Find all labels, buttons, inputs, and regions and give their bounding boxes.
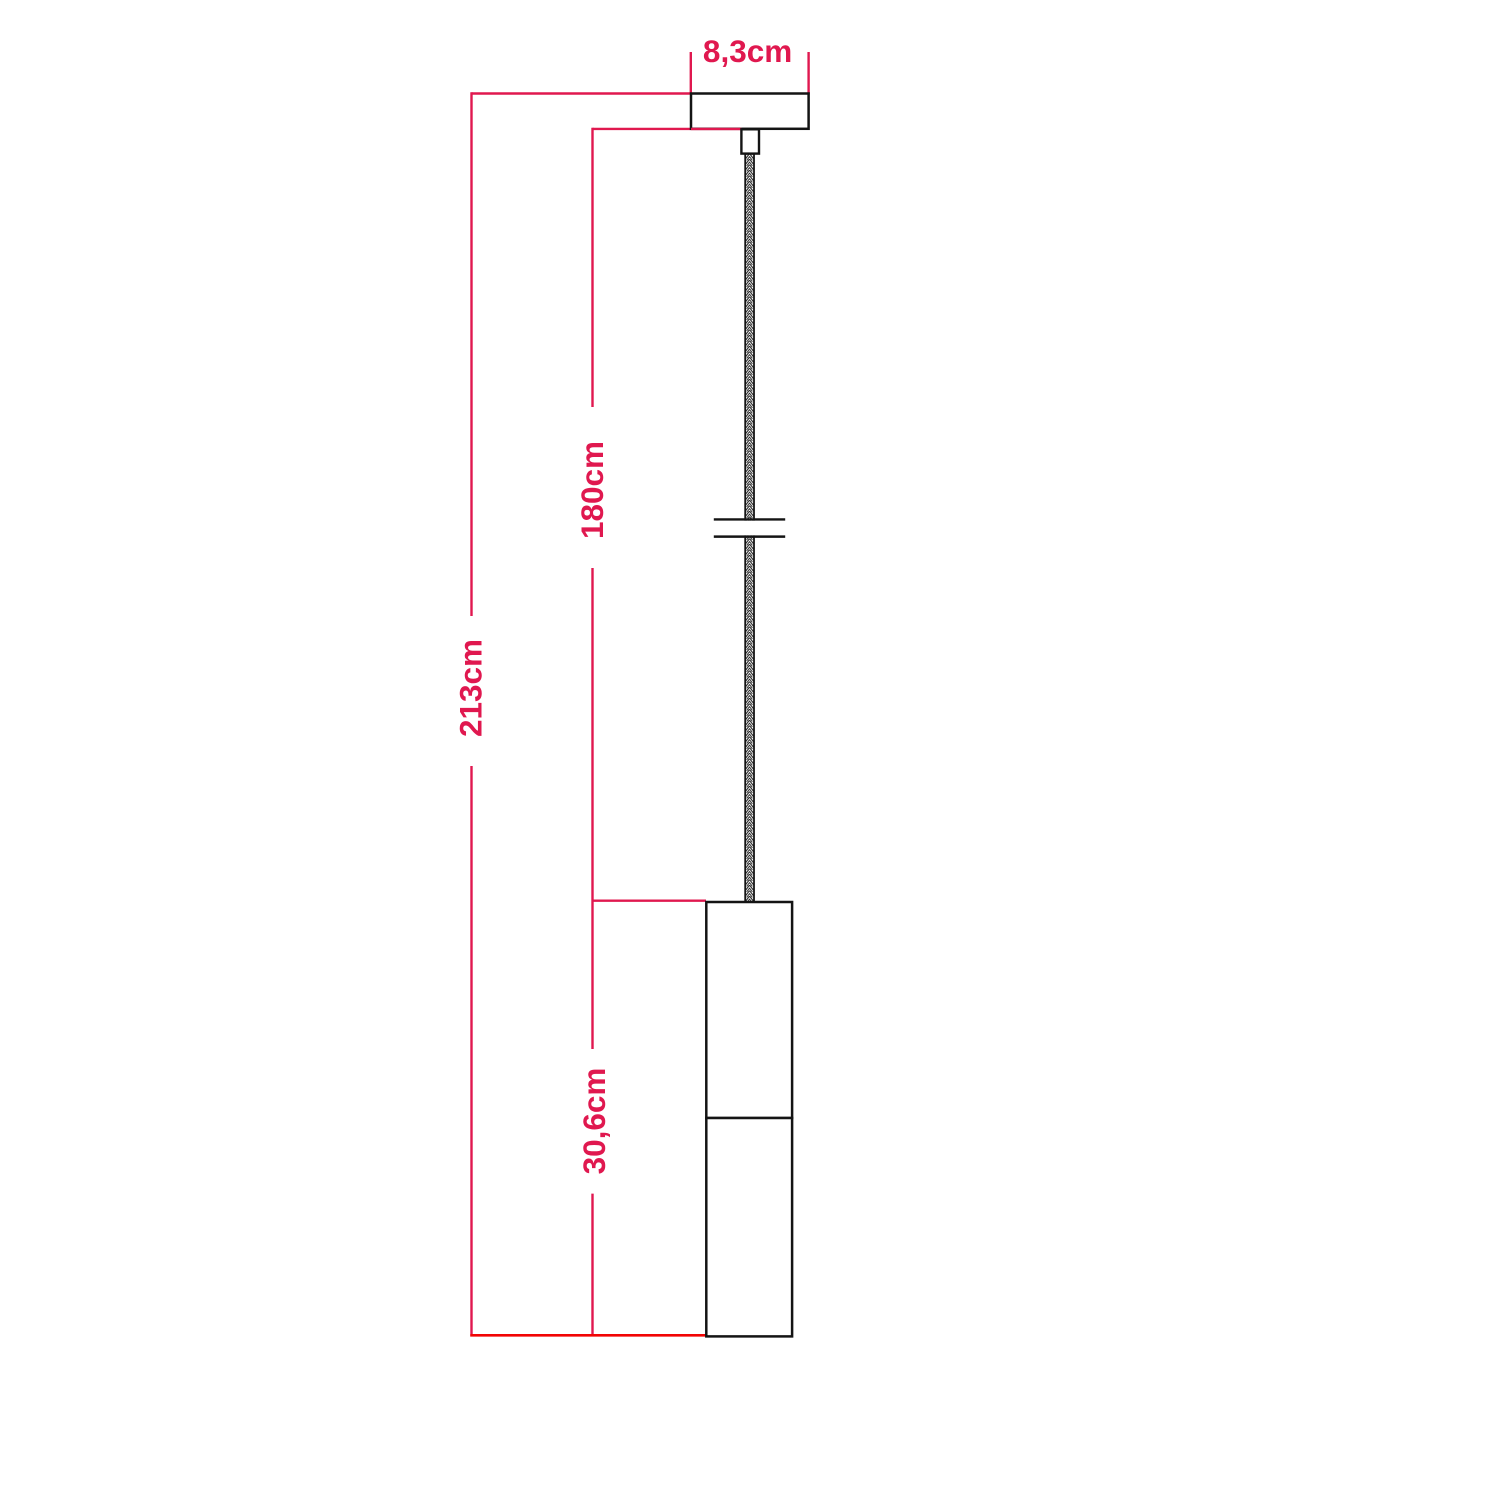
svg-text:8,3cm: 8,3cm (703, 33, 792, 69)
svg-text:180cm: 180cm (574, 441, 610, 539)
svg-text:30,6cm: 30,6cm (576, 1068, 612, 1175)
svg-text:213cm: 213cm (453, 639, 489, 737)
